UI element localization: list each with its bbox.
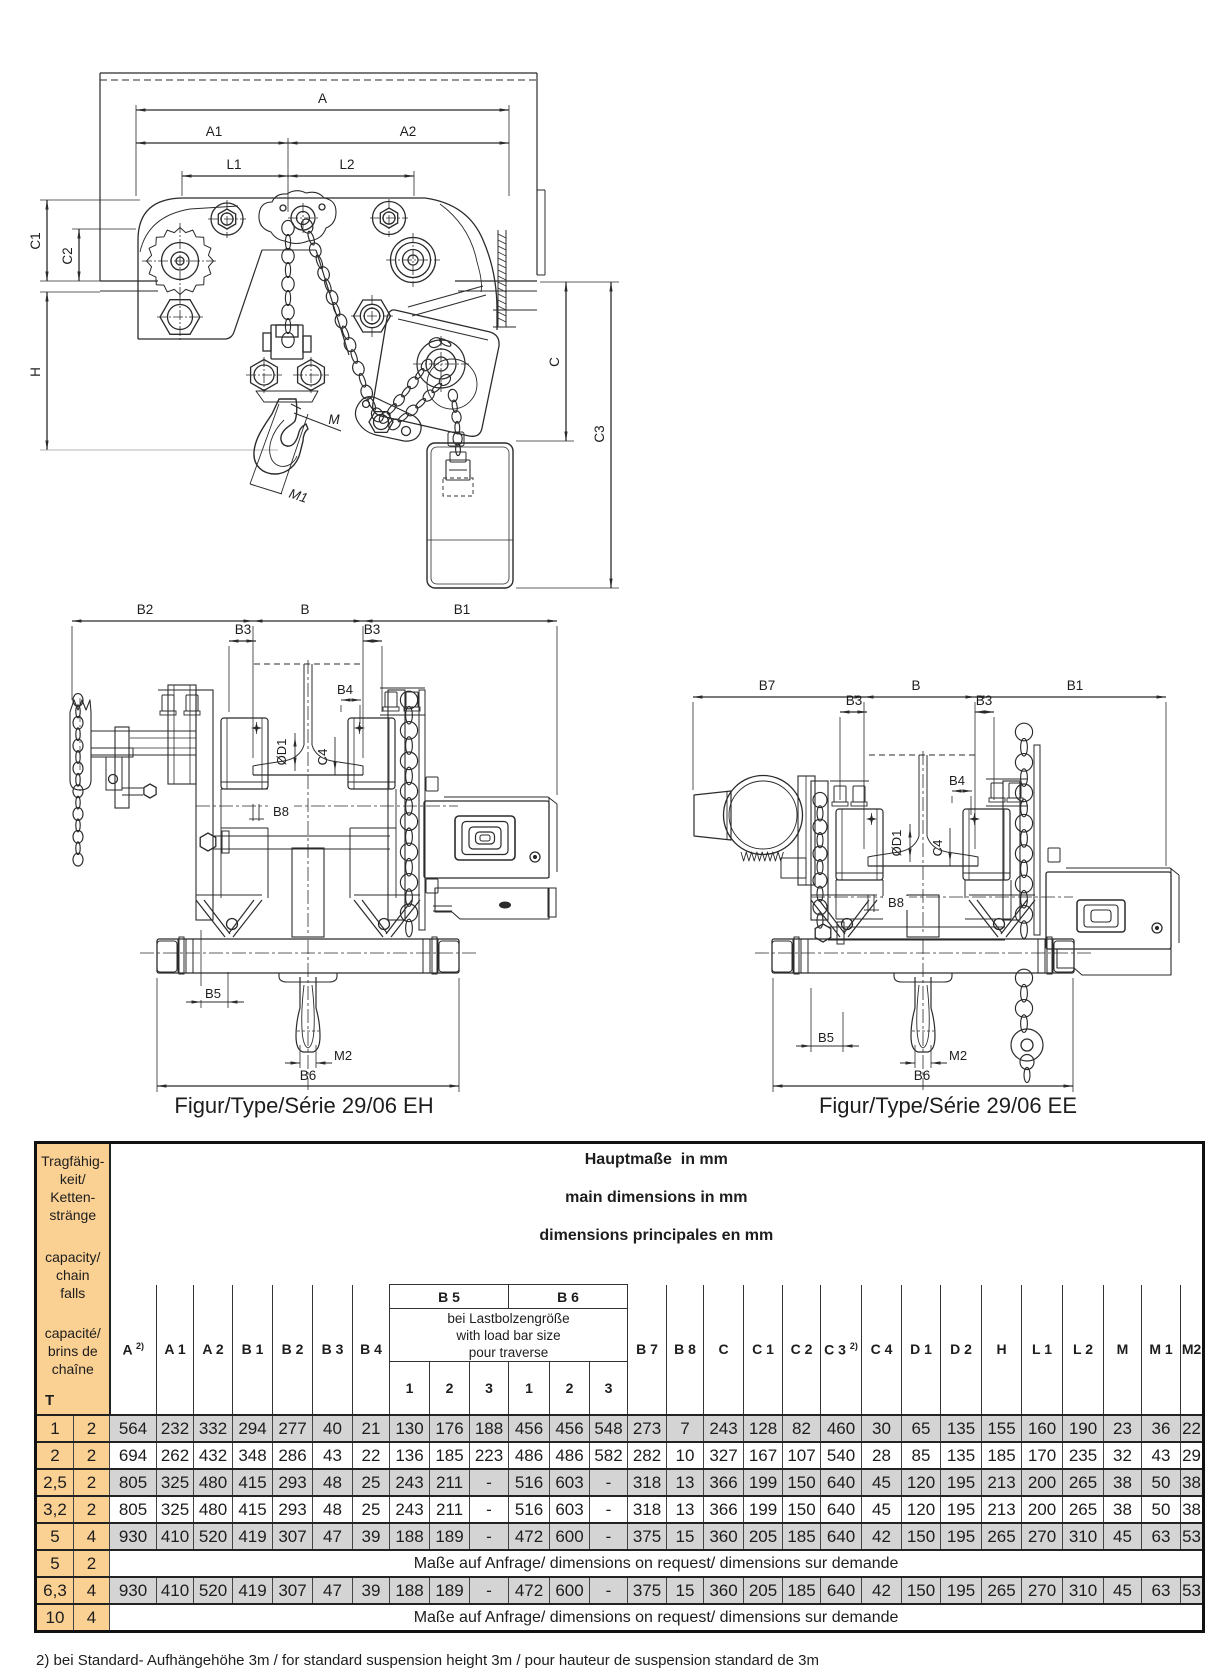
svg-text:B1: B1 [1067, 678, 1084, 693]
svg-text:B5: B5 [205, 986, 221, 1001]
svg-text:L1: L1 [226, 157, 241, 172]
svg-text:B8: B8 [273, 804, 289, 819]
svg-text:C1: C1 [28, 232, 43, 249]
svg-text:B8: B8 [888, 895, 904, 910]
svg-text:L2: L2 [339, 157, 354, 172]
svg-text:B4: B4 [337, 682, 353, 697]
svg-text:M2: M2 [334, 1048, 352, 1063]
svg-text:B7: B7 [759, 678, 776, 693]
svg-text:B: B [911, 678, 920, 693]
svg-text:B4: B4 [949, 773, 965, 788]
svg-text:H: H [28, 367, 43, 377]
svg-text:A1: A1 [206, 124, 223, 139]
svg-text:B2: B2 [137, 602, 154, 617]
svg-text:A: A [318, 91, 327, 106]
svg-text:Figur/Type/Série 29/06 EE: Figur/Type/Série 29/06 EE [819, 1093, 1077, 1118]
svg-text:ØD1: ØD1 [889, 830, 904, 857]
svg-text:B3: B3 [235, 622, 252, 637]
svg-text:M1: M1 [287, 486, 309, 506]
svg-text:B3: B3 [364, 622, 381, 637]
svg-text:Figur/Type/Série 29/06 EH: Figur/Type/Série 29/06 EH [174, 1093, 433, 1118]
svg-text:B6: B6 [914, 1068, 931, 1083]
svg-text:B: B [300, 602, 309, 617]
svg-text:C4: C4 [315, 749, 330, 766]
svg-text:B6: B6 [300, 1068, 317, 1083]
svg-text:B1: B1 [454, 602, 471, 617]
svg-text:C3: C3 [592, 425, 607, 442]
svg-text:M: M [328, 412, 340, 427]
svg-text:C2: C2 [60, 247, 75, 264]
svg-text:M2: M2 [949, 1048, 967, 1063]
svg-text:A2: A2 [400, 124, 417, 139]
svg-text:B3: B3 [976, 693, 993, 708]
svg-text:B5: B5 [818, 1030, 834, 1045]
svg-text:B3: B3 [846, 693, 863, 708]
svg-text:C4: C4 [930, 840, 945, 857]
svg-text:C: C [547, 357, 562, 367]
svg-text:ØD1: ØD1 [274, 739, 289, 766]
